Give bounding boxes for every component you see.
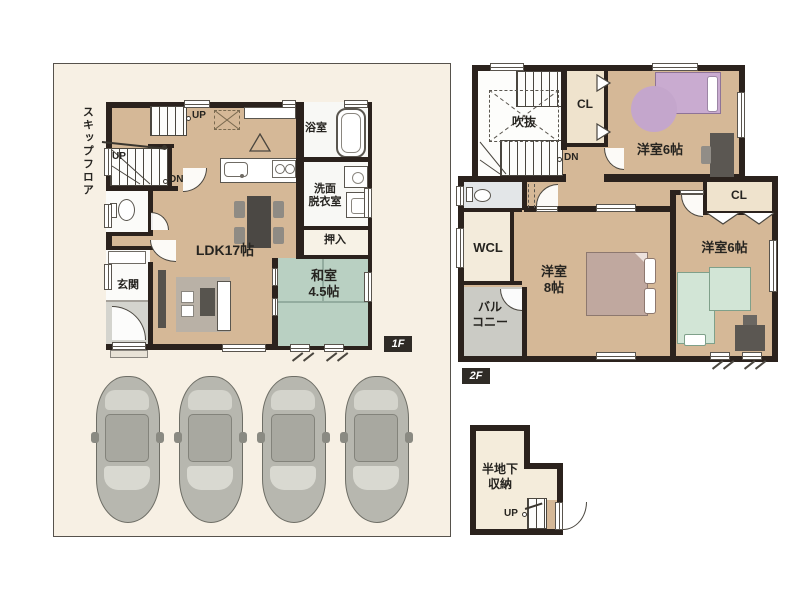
car <box>96 376 160 523</box>
closet-top-label: CL <box>566 97 604 112</box>
car-rear-window <box>188 390 232 410</box>
car-windshield <box>270 466 316 490</box>
floor-cushion <box>181 291 194 303</box>
bed-footboard <box>684 334 706 346</box>
basement-stairs <box>527 498 547 529</box>
floor-cushion <box>181 305 194 317</box>
round-rug <box>631 86 677 132</box>
sliding-door <box>272 298 278 316</box>
floor2-hall-patch <box>566 170 604 184</box>
car-windshield <box>353 466 399 490</box>
dining-chair <box>273 201 284 218</box>
basement-door-arc <box>563 502 587 530</box>
wall <box>148 262 153 346</box>
car-mirror <box>405 432 413 443</box>
desk <box>735 325 765 351</box>
floor1-badge: 1F <box>384 336 412 352</box>
kitchen-sink <box>224 162 248 177</box>
coffee-table <box>200 288 215 316</box>
wall <box>296 226 372 230</box>
window <box>324 344 344 352</box>
car-mirror <box>239 432 247 443</box>
window <box>737 92 745 138</box>
desk <box>710 133 734 177</box>
car <box>345 376 409 523</box>
pillow <box>644 288 656 314</box>
door-opening <box>555 502 563 530</box>
window <box>104 204 112 228</box>
car-roof <box>354 414 398 462</box>
stair-marker-dot <box>186 116 191 121</box>
tatami-line-h <box>276 301 368 303</box>
dining-chair <box>234 201 245 218</box>
wcl-label: WCL <box>458 240 518 256</box>
window <box>710 352 730 360</box>
window <box>652 63 698 71</box>
balcony-label: バル コニー <box>460 300 520 329</box>
wall <box>464 281 522 285</box>
stair-marker-dot <box>163 179 168 184</box>
entrance-opening <box>112 342 146 350</box>
refrigerator-symbol <box>249 133 271 153</box>
wall <box>106 186 178 191</box>
top-counter <box>244 107 296 119</box>
oshiire-label: 押入 <box>307 234 363 247</box>
washroom-label: 洗面 脱衣室 <box>299 183 351 210</box>
window <box>104 148 112 176</box>
window <box>596 352 636 360</box>
wall <box>296 255 372 259</box>
stairs-up <box>150 106 187 136</box>
pantry-hatch <box>214 110 240 130</box>
bathtub <box>336 108 366 158</box>
bath-label: 浴室 <box>302 122 330 135</box>
closet-right-label: CL <box>709 188 769 203</box>
up-label: UP <box>504 508 518 520</box>
tatami-room-label: 和室 4.5帖 <box>286 268 362 300</box>
window <box>456 186 464 206</box>
window <box>596 204 636 212</box>
up-label: UP <box>112 151 126 163</box>
entrance-label: 玄関 <box>108 279 148 292</box>
car-mirror <box>91 432 99 443</box>
up-label: UP <box>192 110 206 122</box>
dashed-opening <box>528 184 529 208</box>
skip-floor-label: スキップフロア <box>80 94 93 209</box>
car-rear-window <box>271 390 315 410</box>
stair-marker-dot <box>557 157 562 162</box>
stairs-lower <box>500 140 563 176</box>
bed-double <box>586 252 648 316</box>
car <box>179 376 243 523</box>
porch-step <box>110 350 148 358</box>
car-windshield <box>104 466 150 490</box>
bedroom-bottom-label: 洋室6帖 <box>672 240 777 256</box>
window <box>282 100 296 108</box>
sliding-door <box>272 268 278 286</box>
wall <box>106 246 153 250</box>
car-mirror <box>340 432 348 443</box>
dn-label: DN <box>564 152 578 164</box>
toilet1f-bowl <box>118 199 135 221</box>
stair-winder-lines <box>478 140 508 176</box>
toilet2f-bowl <box>474 189 491 202</box>
kitchen-faucet-dot <box>240 174 244 178</box>
void-label: 吹抜 <box>494 115 554 130</box>
car-roof <box>105 414 149 462</box>
toilet2f-tank <box>466 187 473 202</box>
pillow <box>644 258 656 284</box>
car <box>262 376 326 523</box>
car-mirror <box>174 432 182 443</box>
door-opening <box>536 206 558 212</box>
dashed-opening <box>534 184 535 208</box>
window <box>290 344 310 352</box>
tv-board <box>158 270 166 328</box>
dining-chair <box>273 227 284 244</box>
entrance-step-line <box>106 300 150 302</box>
bedroom-top-label: 洋室6帖 <box>615 142 705 158</box>
window <box>742 352 762 360</box>
skip-floor-leader-dot <box>162 145 167 150</box>
window <box>184 100 210 108</box>
green-mat <box>709 267 751 311</box>
dn-label: DN <box>169 174 183 186</box>
floor-plan-canvas: スキップフロア UP UP DN 浴室 洗面 脱衣室 押入 LDK17帖 和室 … <box>0 0 800 600</box>
car-mirror <box>322 432 330 443</box>
window <box>222 344 266 352</box>
window <box>364 188 372 218</box>
wall <box>522 287 527 356</box>
sofa <box>217 281 231 331</box>
car-mirror <box>156 432 164 443</box>
floor2-badge: 2F <box>462 368 490 384</box>
bedroom-main-label: 洋室 8帖 <box>524 264 584 296</box>
stove <box>272 160 296 178</box>
car-roof <box>188 414 232 462</box>
basement-storage-label: 半地下 収納 <box>470 462 530 491</box>
ldk-label: LDK17帖 <box>180 242 270 259</box>
window <box>364 272 372 302</box>
car-windshield <box>187 466 233 490</box>
car-roof <box>271 414 315 462</box>
window <box>490 63 524 71</box>
wall <box>670 192 676 360</box>
car-rear-window <box>105 390 149 410</box>
shoe-cabinet <box>108 251 146 264</box>
car-rear-window <box>354 390 398 410</box>
window <box>344 100 368 108</box>
wall <box>106 232 153 236</box>
folding-closet-doors <box>706 212 776 226</box>
car-mirror <box>257 432 265 443</box>
dining-table <box>247 196 271 248</box>
desk-monitor <box>743 315 757 325</box>
stair-marker-dot <box>522 512 527 517</box>
wall <box>296 157 372 162</box>
